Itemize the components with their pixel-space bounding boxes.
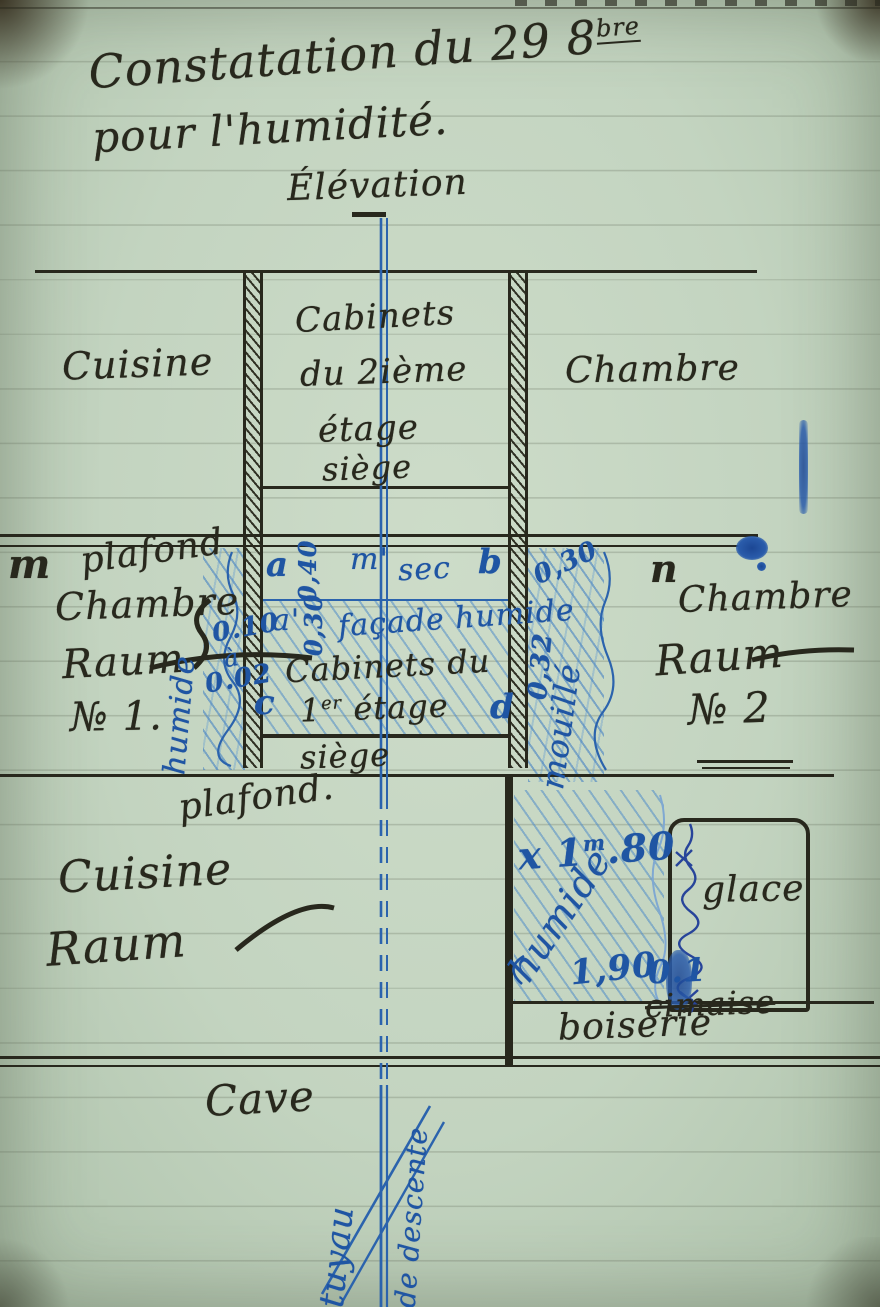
room-label-cuisine-2: Cuisine bbox=[61, 342, 214, 385]
point-b-label: b bbox=[478, 545, 503, 579]
room-label-chambre-2: Chambre bbox=[565, 350, 740, 389]
no2-underline-1 bbox=[697, 760, 793, 763]
closet1-num: 1 bbox=[299, 691, 322, 730]
point-a-label: a bbox=[266, 548, 289, 582]
room1-right-number: № 2 bbox=[687, 687, 771, 732]
floor2-seat-line bbox=[263, 486, 508, 489]
closet1-label-1: Cabinets du bbox=[284, 645, 491, 688]
closet2-label-2: du 2ième bbox=[299, 352, 468, 392]
point-c-label: c bbox=[254, 686, 276, 720]
point-n-label: n bbox=[650, 550, 679, 588]
ink-blot-near-n bbox=[736, 536, 768, 560]
closet1-label-2: 1er étage bbox=[299, 689, 449, 726]
basement-label: Cave bbox=[204, 1075, 316, 1123]
room0-left-line2: Raum bbox=[45, 917, 188, 973]
elevation-label: Élévation bbox=[286, 165, 468, 207]
point-m-prime-label: m' bbox=[350, 545, 389, 575]
cut-off-text-marks bbox=[515, 0, 880, 6]
mirror-label: glace bbox=[702, 871, 805, 909]
floor0-wall-line bbox=[505, 777, 513, 1067]
point-m-label: m bbox=[8, 545, 51, 585]
closet1-rest: étage bbox=[342, 686, 450, 728]
closet1-sup: er bbox=[321, 693, 343, 714]
notebook-page: Constatation du 29 8bre pour l'humidité.… bbox=[0, 0, 880, 1307]
room1-right-line2: Raum bbox=[654, 632, 785, 683]
closet2-label-3: étage bbox=[317, 410, 419, 448]
title-superscript: bre bbox=[595, 11, 641, 44]
point-d-label: d bbox=[490, 690, 515, 724]
wet-height-bottom: 1,90 bbox=[568, 948, 658, 991]
paneling-label: boiserie bbox=[557, 1005, 712, 1046]
closet2-seat-label: siège bbox=[321, 450, 412, 485]
closet2-label-1: Cabinets bbox=[294, 296, 456, 338]
room1-left-number: № 1. bbox=[70, 696, 163, 738]
no2-underline-2 bbox=[702, 767, 790, 769]
room1-right-line1: Chambre bbox=[677, 577, 853, 619]
floor2-ceiling-line bbox=[35, 270, 757, 273]
elevation-underline bbox=[352, 212, 386, 217]
dry-label: sec bbox=[397, 554, 451, 587]
top-ruled-line bbox=[0, 7, 880, 9]
floor0-ceiling-line bbox=[0, 774, 834, 777]
ink-streak-right bbox=[799, 420, 808, 514]
basement-ceiling-line-top bbox=[0, 1056, 880, 1059]
wet-value-right: 0.1 bbox=[647, 953, 707, 988]
ink-dot-near-n bbox=[757, 562, 766, 571]
basement-ceiling-line-bottom bbox=[0, 1065, 880, 1067]
room0-left-line1: Cuisine bbox=[57, 847, 233, 900]
height-0-30: 0,30 bbox=[302, 600, 326, 656]
